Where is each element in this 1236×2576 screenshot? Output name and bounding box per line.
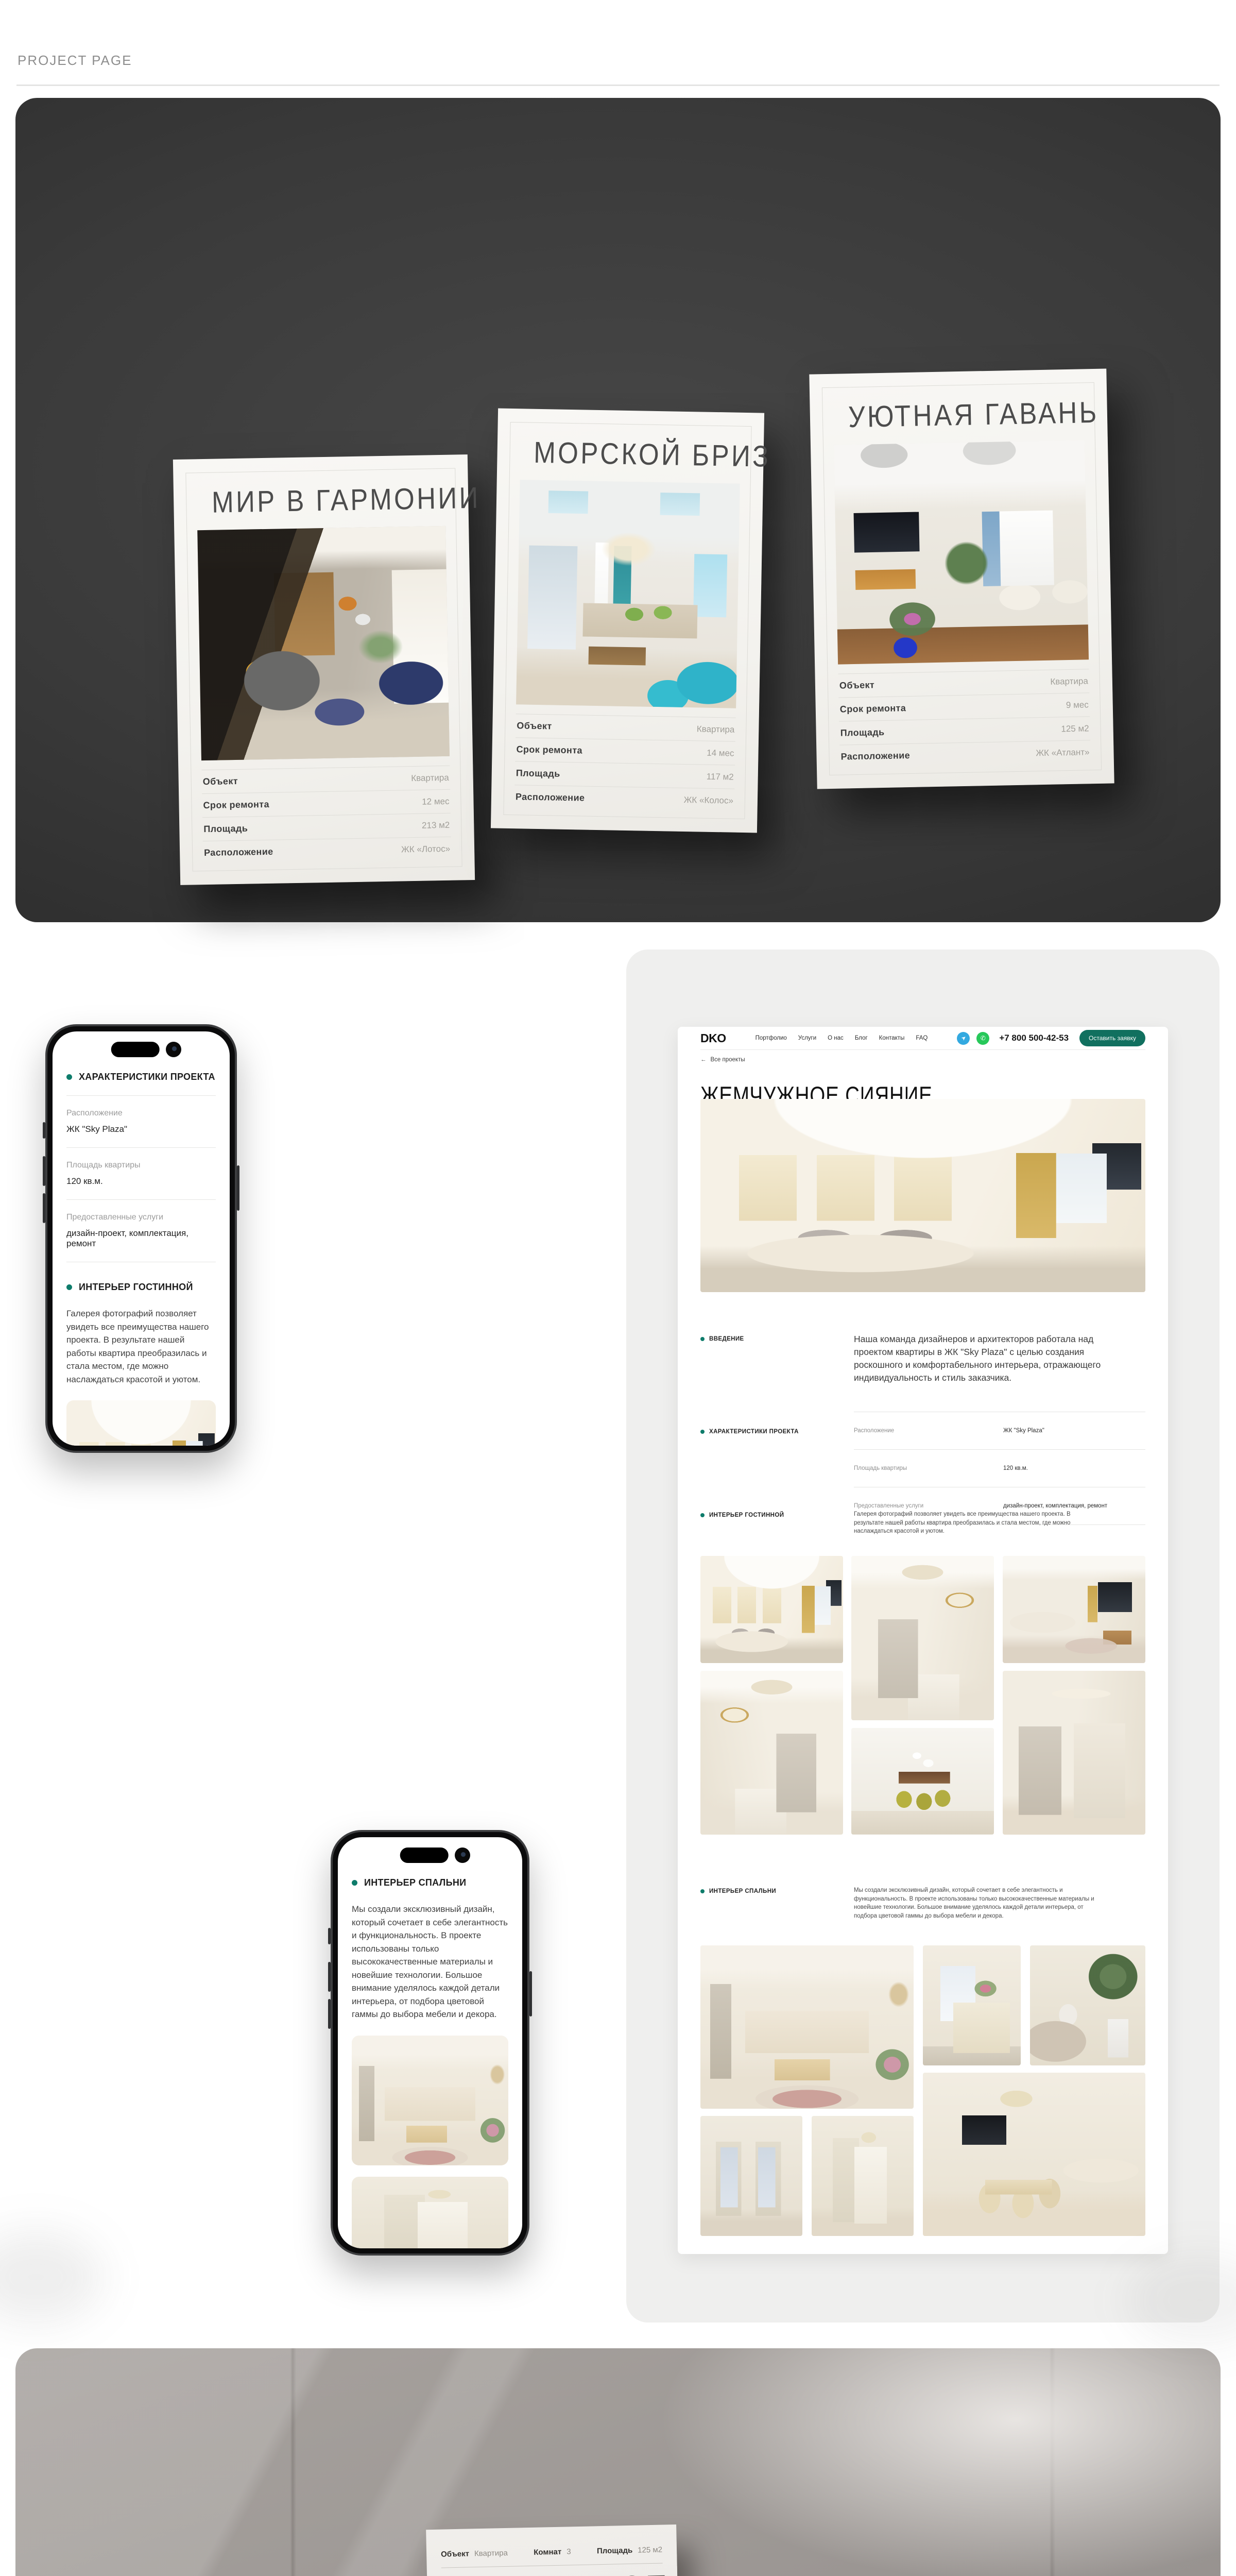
row-value: 12 мес [422,796,450,807]
poster-title-line1: ЖЕМЧУЖНОЕ [441,2569,668,2576]
row-value: 125 м2 [1061,723,1089,734]
section-label-text: ИНТЕРЬЕР СПАЛЬНИ [709,1888,776,1894]
volume-up-button [328,1962,331,1992]
phone-content: ХАРАКТЕРИСТИКИ ПРОЕКТА Расположение ЖК "… [53,1031,230,1446]
back-label: Все проекты [711,1057,745,1063]
row-value: ЖК «Лотос» [401,843,450,855]
section-label-text: ИНТЕРЬЕР ГОСТИННОЙ [709,1512,784,1518]
divider [66,1095,216,1096]
poster-title: УЮТНАЯ ГАВАНЬ [848,396,1070,434]
back-arrow-icon: ← [700,1057,707,1063]
meta-value: 3 [566,2547,571,2556]
specs-table: Расположение ЖК "Sky Plaza" Площадь квар… [854,1412,1145,1525]
bullet-icon [66,1074,72,1080]
meta-value: 125 м2 [638,2546,662,2555]
row-value: 117 м2 [707,771,734,782]
power-button [237,1165,239,1211]
meta-label: Объект [441,2549,469,2558]
row-label: Срок ремонта [203,799,269,811]
phone-content: ИНТЕРЬЕР СПАЛЬНИ Мы создали эксклюзивный… [338,1837,522,2248]
wall-poster: Объект Квартира Комнат 3 Площадь 125 м2 … [426,2524,688,2576]
row-value: 120 кв.м. [1003,1465,1145,1471]
wall-scene: Объект Квартира Комнат 3 Площадь 125 м2 … [15,2348,1221,2576]
row-value: 14 мес [707,748,734,758]
row-label: Площадь [203,823,248,835]
poster-title: МОРСКОЙ БРИЗ [534,435,728,473]
front-camera [166,1042,181,1057]
row-label: Предоставленные услуги [854,1503,1003,1509]
poster-photo [197,526,450,760]
section-paragraph: Мы создали эксклюзивный дизайн, который … [352,1903,508,2021]
row-value: ЖК "Sky Plaza" [1003,1428,1145,1434]
poster-title: МИР В ГАРМОНИИ [212,481,431,519]
table-row: Расположение ЖК «Атлант» [839,740,1091,768]
section-label-bedroom: ИНТЕРЬЕР СПАЛЬНИ [700,1888,845,1894]
phone-photo [352,2177,508,2249]
bullet-icon [700,1513,705,1517]
table-row: Расположение ЖК «Колос» [514,785,735,812]
row-value: ЖК «Колос» [683,794,733,806]
poster-table: Объект Квартира Срок ремонта 12 мес Площ… [201,766,451,865]
row-value: 9 мес [1066,700,1089,710]
row-label: Площадь квартиры [66,1161,216,1170]
bedroom-text: Мы создали эксклюзивный дизайн, который … [854,1886,1096,1921]
gallery-photo [700,1671,843,1835]
meta-pair: Площадь 125 м2 [597,2546,662,2556]
back-link[interactable]: ← Все проекты [700,1057,1145,1063]
whatsapp-icon[interactable]: ✆ [976,1032,989,1045]
row-value: Квартира [1050,676,1088,687]
gallery-photo [700,1945,914,2109]
gallery-photo [923,1945,1021,2065]
row-value: 120 кв.м. [66,1176,216,1187]
section-heading: ИНТЕРЬЕР ГОСТИННОЙ [66,1282,216,1293]
row-value: дизайн-проект, комплектация, ремонт [1003,1503,1145,1509]
row-label: Площадь [516,768,560,779]
divider [66,1147,216,1148]
row-label: Расположение [516,791,585,803]
section-heading: ИНТЕРЬЕР СПАЛЬНИ [352,1877,508,1888]
intro-text: Наша команда дизайнеров и архитекторов р… [854,1333,1127,1384]
poster-uyutnaya-gavan: УЮТНАЯ ГАВАНЬ Объект Квартира Срок ремон… [809,369,1114,789]
phone-screen: ИНТЕРЬЕР СПАЛЬНИ Мы создали эксклюзивный… [338,1837,522,2248]
volume-up-button [43,1156,45,1186]
row-label: Срок ремонта [516,744,582,756]
hero-photo [700,1099,1145,1292]
request-button[interactable]: Оставить заявку [1079,1030,1145,1046]
table-row: Расположение ЖК "Sky Plaza" [854,1412,1145,1449]
nav-item-services[interactable]: Услуги [798,1035,816,1041]
table-row: Срок ремонта 14 мес [515,737,735,765]
power-button [529,1971,532,2016]
gallery-photo [1003,1556,1145,1663]
row-label: Объект [839,680,875,691]
phone-photo [66,1400,216,1446]
section-paragraph: Галерея фотографий позволяет увидеть все… [66,1307,216,1386]
gallery-photo [700,2116,802,2236]
table-row: Объект Квартира [516,714,736,741]
living-text: Галерея фотографий позволяет увидеть все… [854,1510,1096,1536]
nav-item-contacts[interactable]: Контакты [879,1035,905,1041]
table-row: Расположение ЖК «Лотос» [203,837,452,865]
row-label: Расположение [840,750,910,762]
shadow-smudge [0,2231,103,2324]
row-value: 213 м2 [422,820,450,831]
dynamic-island [111,1042,160,1057]
row-value: ЖК «Атлант» [1036,747,1090,758]
bullet-icon [352,1880,357,1886]
row-label: Расположение [66,1109,216,1118]
poster-frame: МОРСКОЙ БРИЗ Объект Квартира Срок ремонт… [503,422,751,819]
poster-frame: МИР В ГАРМОНИИ Объект Квартира Срок ремо… [185,468,462,871]
section-heading-text: ХАРАКТЕРИСТИКИ ПРОЕКТА [79,1072,215,1082]
gallery-photo [1030,1945,1145,2065]
main-nav: Портфолио Услуги О нас Блог Контакты FAQ [756,1035,928,1041]
poster-table: Объект Квартира Срок ремонта 14 мес Площ… [514,714,736,812]
section-heading: ХАРАКТЕРИСТИКИ ПРОЕКТА [66,1072,216,1082]
table-row: Площадь 213 м2 [202,813,451,841]
row-label: Расположение [204,846,273,858]
meta-label: Комнат [534,2548,561,2557]
living-gallery [700,1556,1145,1835]
nav-item-faq[interactable]: FAQ [916,1035,928,1041]
poster-photo [834,440,1089,664]
section-label-text: ХАРАКТЕРИСТИКИ ПРОЕКТА [709,1429,799,1435]
gallery-photo [700,1556,843,1663]
divider [66,1199,216,1200]
bullet-icon [700,1430,705,1434]
nav-item-portfolio[interactable]: Портфолио [756,1035,787,1041]
row-label: Расположение [854,1428,1003,1434]
table-row: Объект Квартира [201,766,450,793]
row-label: Площадь квартиры [854,1465,1003,1471]
section-label-specs: ХАРАКТЕРИСТИКИ ПРОЕКТА [700,1429,845,1435]
poster-frame: УЮТНАЯ ГАВАНЬ Объект Квартира Срок ремон… [822,382,1102,775]
row-label: Срок ремонта [840,703,906,715]
mute-switch [43,1122,45,1139]
meta-pair: Комнат 3 [534,2547,571,2557]
gallery-photo [1003,1671,1145,1835]
logo[interactable]: DKO [700,1031,726,1045]
section-label-text: ВВЕДЕНИЕ [709,1336,744,1342]
mute-switch [328,1928,331,1944]
table-row: Площадь 117 м2 [514,761,735,788]
dynamic-island [400,1848,449,1863]
table-row: Площадь квартиры 120 кв.м. [854,1449,1145,1487]
poster-meta-row: Объект Квартира Комнат 3 Площадь 125 м2 [441,2546,662,2559]
divider [66,1262,216,1262]
posters-showcase: МИР В ГАРМОНИИ Объект Квартира Срок ремо… [15,98,1221,922]
meta-label: Площадь [597,2546,633,2555]
section-label-intro: ВВЕДЕНИЕ [700,1336,845,1342]
front-camera [455,1848,470,1863]
poster-morskoy-briz: МОРСКОЙ БРИЗ Объект Квартира Срок ремонт… [491,409,764,833]
header-contacts: ➤ ✆ +7 800 500-42-53 Оставить заявку [957,1030,1145,1046]
volume-down-button [328,1999,331,2029]
bedroom-gallery [700,1945,1145,2236]
bullet-icon [700,1889,705,1893]
row-value: ЖК "Sky Plaza" [66,1124,216,1134]
phone-mockup-bedroom: ИНТЕРЬЕР СПАЛЬНИ Мы создали эксклюзивный… [331,1830,529,2256]
bullet-icon [700,1337,705,1341]
bullet-icon [66,1284,72,1290]
volume-down-button [43,1193,45,1223]
gallery-photo [851,1728,994,1835]
telegram-icon[interactable]: ➤ [957,1032,970,1045]
poster-mir-v-garmonii: МИР В ГАРМОНИИ Объект Квартира Срок ремо… [173,454,475,885]
phone-mockup-specs: ХАРАКТЕРИСТИКИ ПРОЕКТА Расположение ЖК "… [45,1024,237,1453]
nav-item-about[interactable]: О нас [828,1035,844,1041]
phone-screen: ХАРАКТЕРИСТИКИ ПРОЕКТА Расположение ЖК "… [53,1031,230,1446]
poster-photo [516,480,740,708]
row-value: дизайн-проект, комплектация, ремонт [66,1228,216,1249]
section-label-living: ИНТЕРЬЕР ГОСТИННОЙ [700,1512,845,1518]
phone-number[interactable]: +7 800 500-42-53 [999,1033,1069,1043]
divider [16,84,1220,86]
row-value: Квартира [697,724,735,735]
meta-value: Квартира [474,2549,508,2558]
phone-photo [352,2036,508,2165]
website-mockup: DKO Портфолио Услуги О нас Блог Контакты… [678,1027,1168,2254]
row-label: Объект [203,776,238,787]
poster-table: Объект Квартира Срок ремонта 9 мес Площа… [838,669,1090,768]
meta-pair: Объект Квартира [441,2549,508,2559]
row-value: Квартира [411,772,449,783]
gallery-photo [812,2116,914,2236]
row-label: Площадь [840,727,885,739]
site-header: DKO Портфолио Услуги О нас Блог Контакты… [700,1027,1145,1050]
gallery-photo [923,2073,1145,2236]
row-label: Предоставленные услуги [66,1213,216,1222]
section-heading-text: ИНТЕРЬЕР СПАЛЬНИ [364,1877,466,1888]
section-heading-text: ИНТЕРЬЕР ГОСТИННОЙ [79,1282,193,1293]
gallery-photo [851,1556,994,1720]
row-label: Объект [517,720,552,732]
nav-item-blog[interactable]: Блог [855,1035,868,1041]
page-title: PROJECT PAGE [18,53,132,69]
